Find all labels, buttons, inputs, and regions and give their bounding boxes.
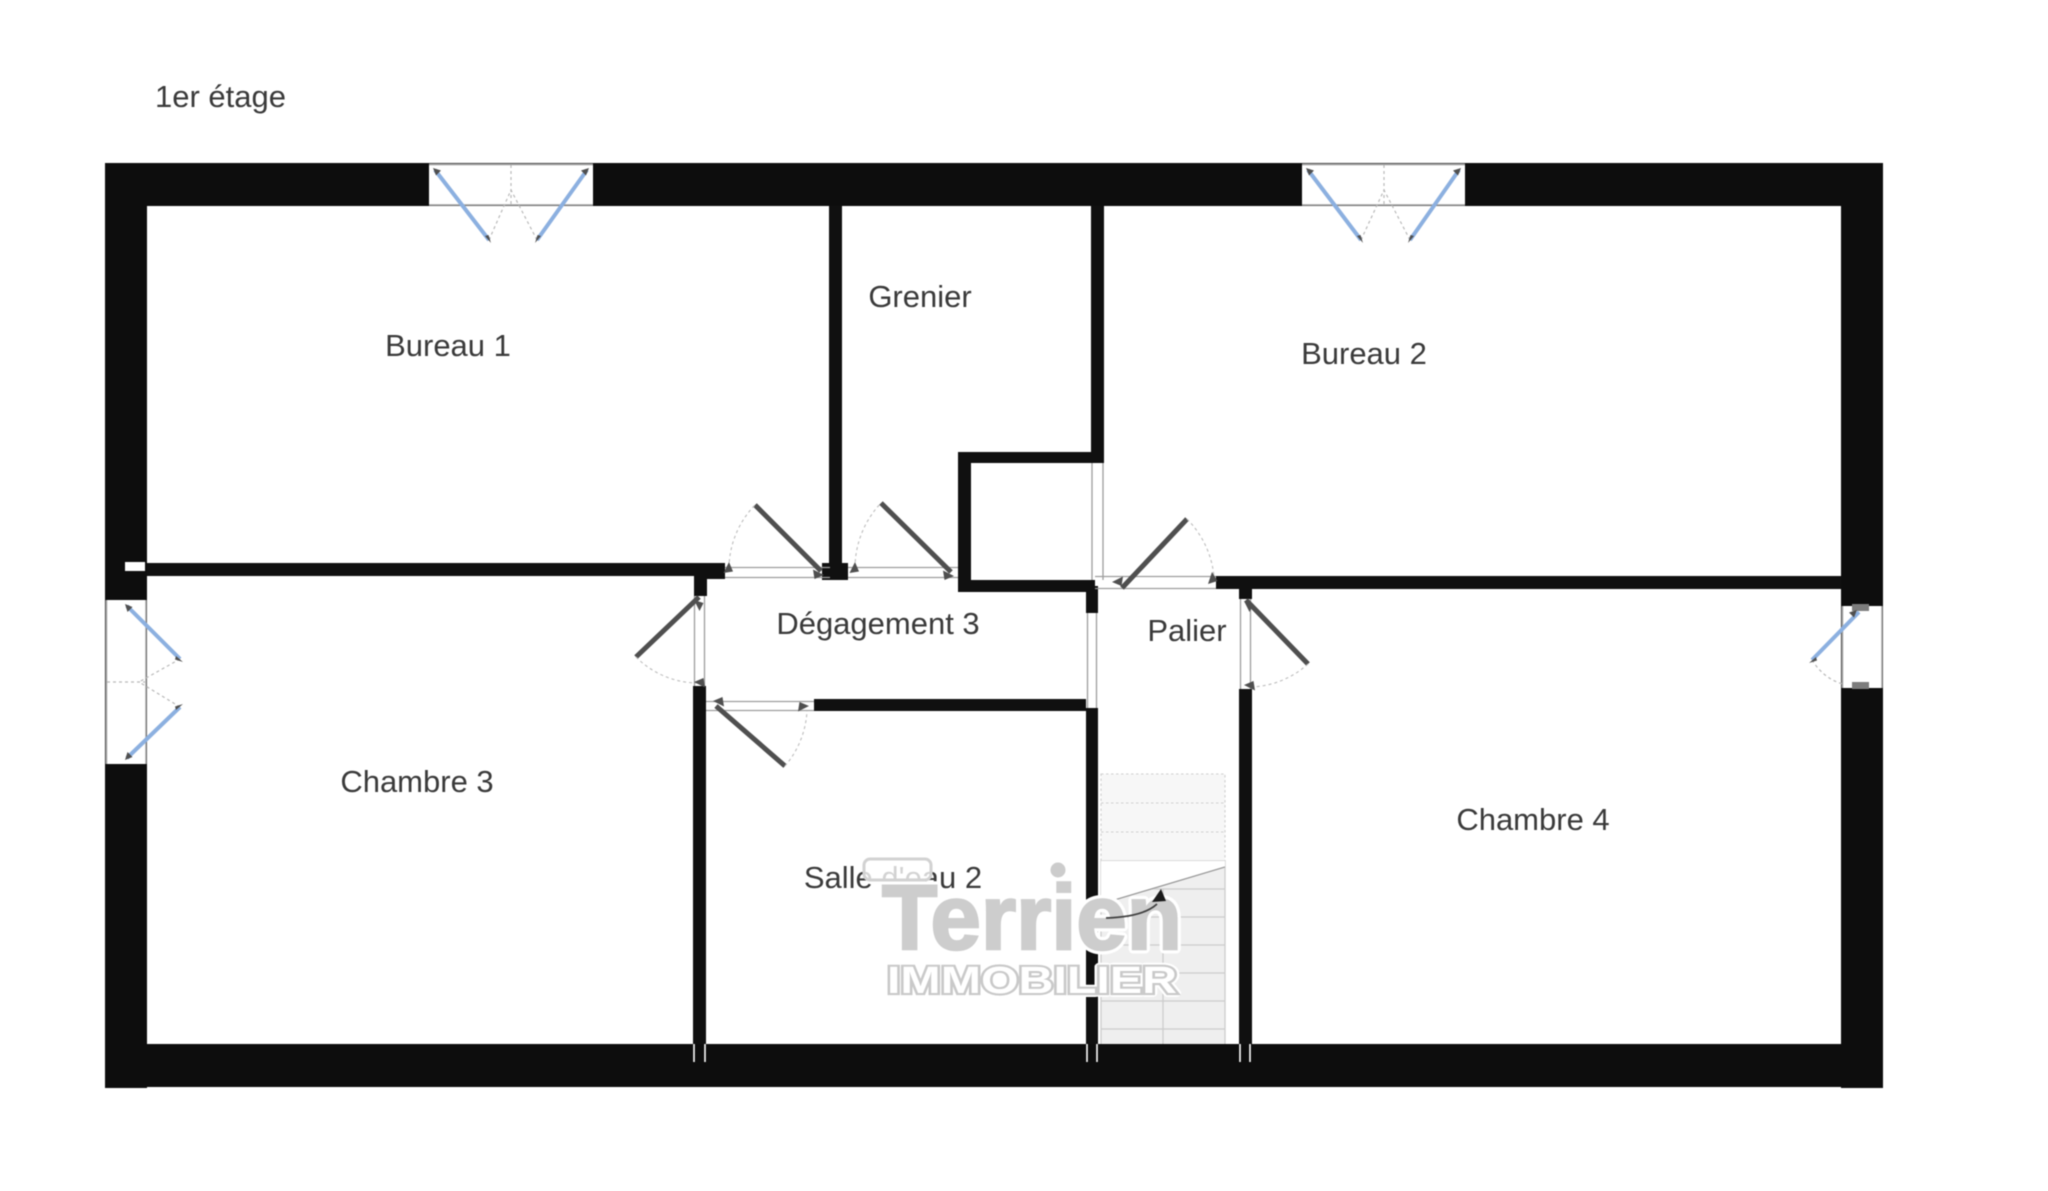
svg-text:Palier: Palier bbox=[1147, 613, 1226, 648]
svg-text:Chambre 3: Chambre 3 bbox=[340, 764, 493, 799]
svg-text:Grenier: Grenier bbox=[868, 279, 971, 314]
svg-text:Dégagement 3: Dégagement 3 bbox=[776, 606, 979, 641]
svg-text:1er étage: 1er étage bbox=[155, 79, 286, 114]
svg-text:IMMOBILIER: IMMOBILIER bbox=[887, 960, 1177, 1002]
svg-text:Chambre 4: Chambre 4 bbox=[1456, 802, 1609, 837]
svg-text:Terrien: Terrien bbox=[882, 867, 1182, 969]
svg-text:Bureau 2: Bureau 2 bbox=[1301, 336, 1427, 371]
svg-text:Bureau 1: Bureau 1 bbox=[385, 328, 511, 363]
